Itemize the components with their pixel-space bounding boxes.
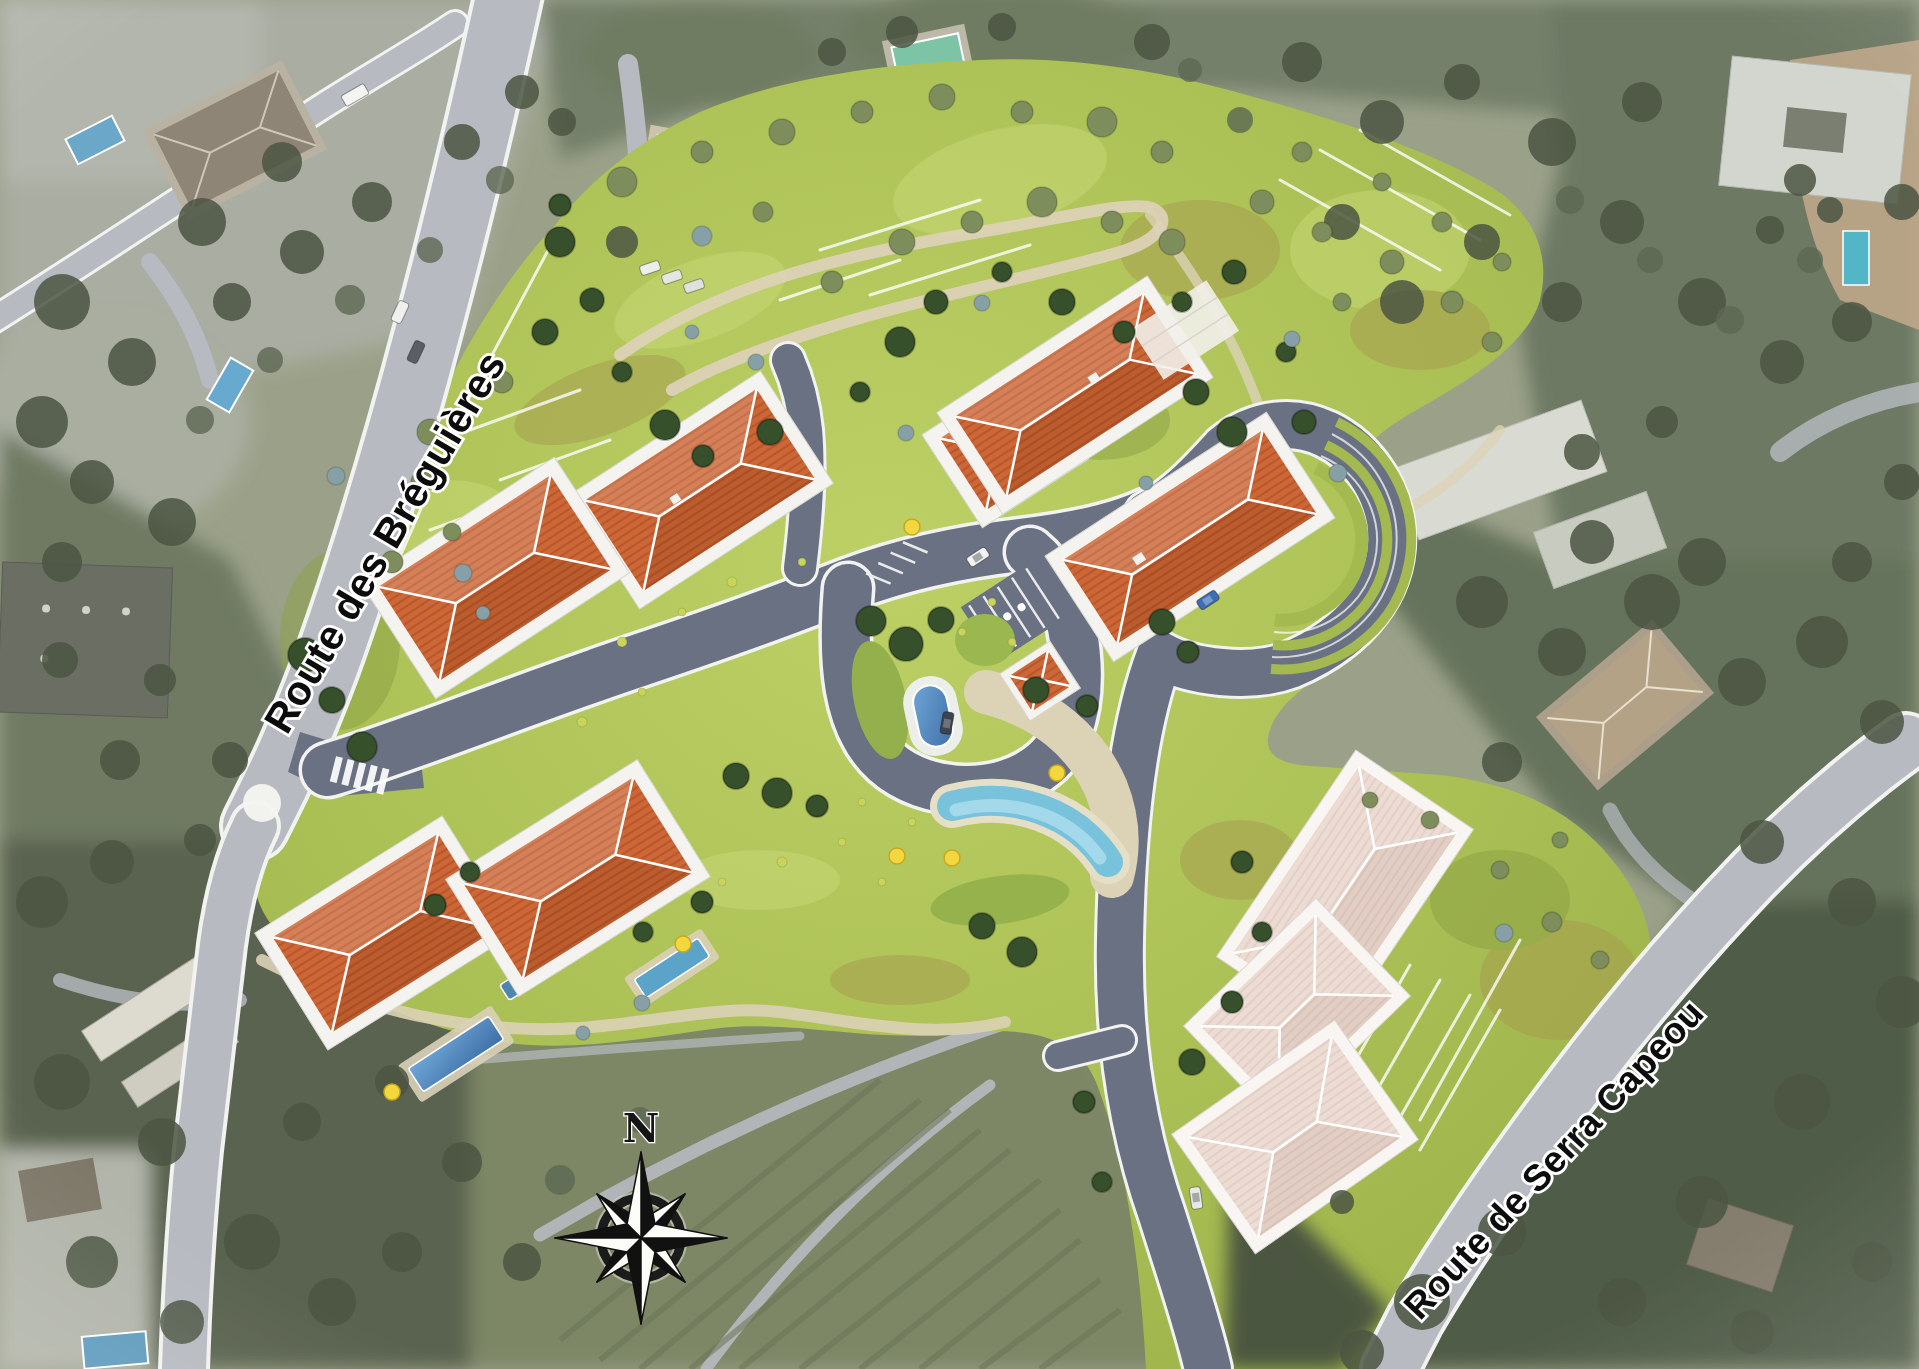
site-plan-canvas: Route des Bréguières Route de Serra Cape… xyxy=(0,0,1919,1369)
site-plan-aerial-view: Route des Bréguières Route de Serra Cape… xyxy=(0,0,1919,1369)
photo-vignette xyxy=(0,0,1919,1369)
